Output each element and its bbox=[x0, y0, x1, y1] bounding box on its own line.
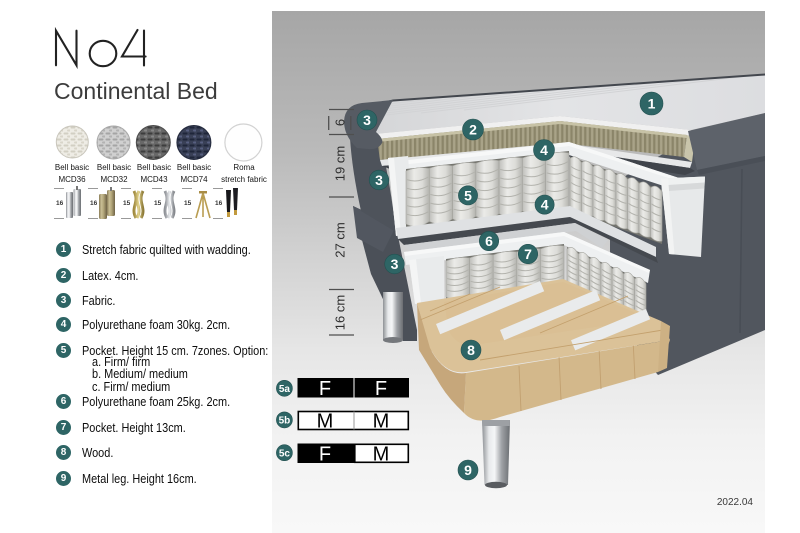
svg-text:5a: 5a bbox=[279, 384, 291, 395]
svg-text:19 cm: 19 cm bbox=[333, 146, 348, 181]
svg-text:M: M bbox=[373, 410, 390, 432]
svg-text:6: 6 bbox=[333, 119, 348, 126]
svg-text:8: 8 bbox=[467, 342, 475, 358]
svg-text:3: 3 bbox=[391, 256, 399, 272]
svg-text:5c: 5c bbox=[279, 448, 291, 459]
svg-text:M: M bbox=[317, 410, 334, 432]
svg-text:16: 16 bbox=[56, 200, 64, 207]
svg-text:2022.04: 2022.04 bbox=[717, 497, 754, 508]
svg-text:15: 15 bbox=[184, 200, 192, 207]
svg-text:15: 15 bbox=[123, 200, 131, 207]
svg-text:16: 16 bbox=[90, 200, 98, 207]
svg-text:1: 1 bbox=[648, 96, 656, 112]
svg-text:4: 4 bbox=[540, 142, 548, 158]
svg-text:16: 16 bbox=[215, 200, 223, 207]
svg-text:15: 15 bbox=[154, 200, 162, 207]
svg-text:7: 7 bbox=[524, 246, 532, 262]
svg-text:6: 6 bbox=[485, 233, 493, 249]
svg-text:3: 3 bbox=[363, 112, 371, 128]
svg-text:M: M bbox=[373, 443, 390, 465]
svg-text:F: F bbox=[319, 443, 331, 465]
svg-text:5b: 5b bbox=[279, 416, 291, 427]
svg-text:3: 3 bbox=[375, 172, 383, 188]
svg-text:27 cm: 27 cm bbox=[333, 222, 348, 257]
svg-text:F: F bbox=[319, 378, 331, 400]
svg-text:F: F bbox=[375, 378, 387, 400]
svg-text:16 cm: 16 cm bbox=[333, 295, 348, 330]
svg-text:2: 2 bbox=[469, 122, 477, 138]
svg-text:9: 9 bbox=[464, 462, 472, 478]
svg-text:5: 5 bbox=[464, 187, 472, 203]
svg-text:4: 4 bbox=[541, 197, 549, 213]
